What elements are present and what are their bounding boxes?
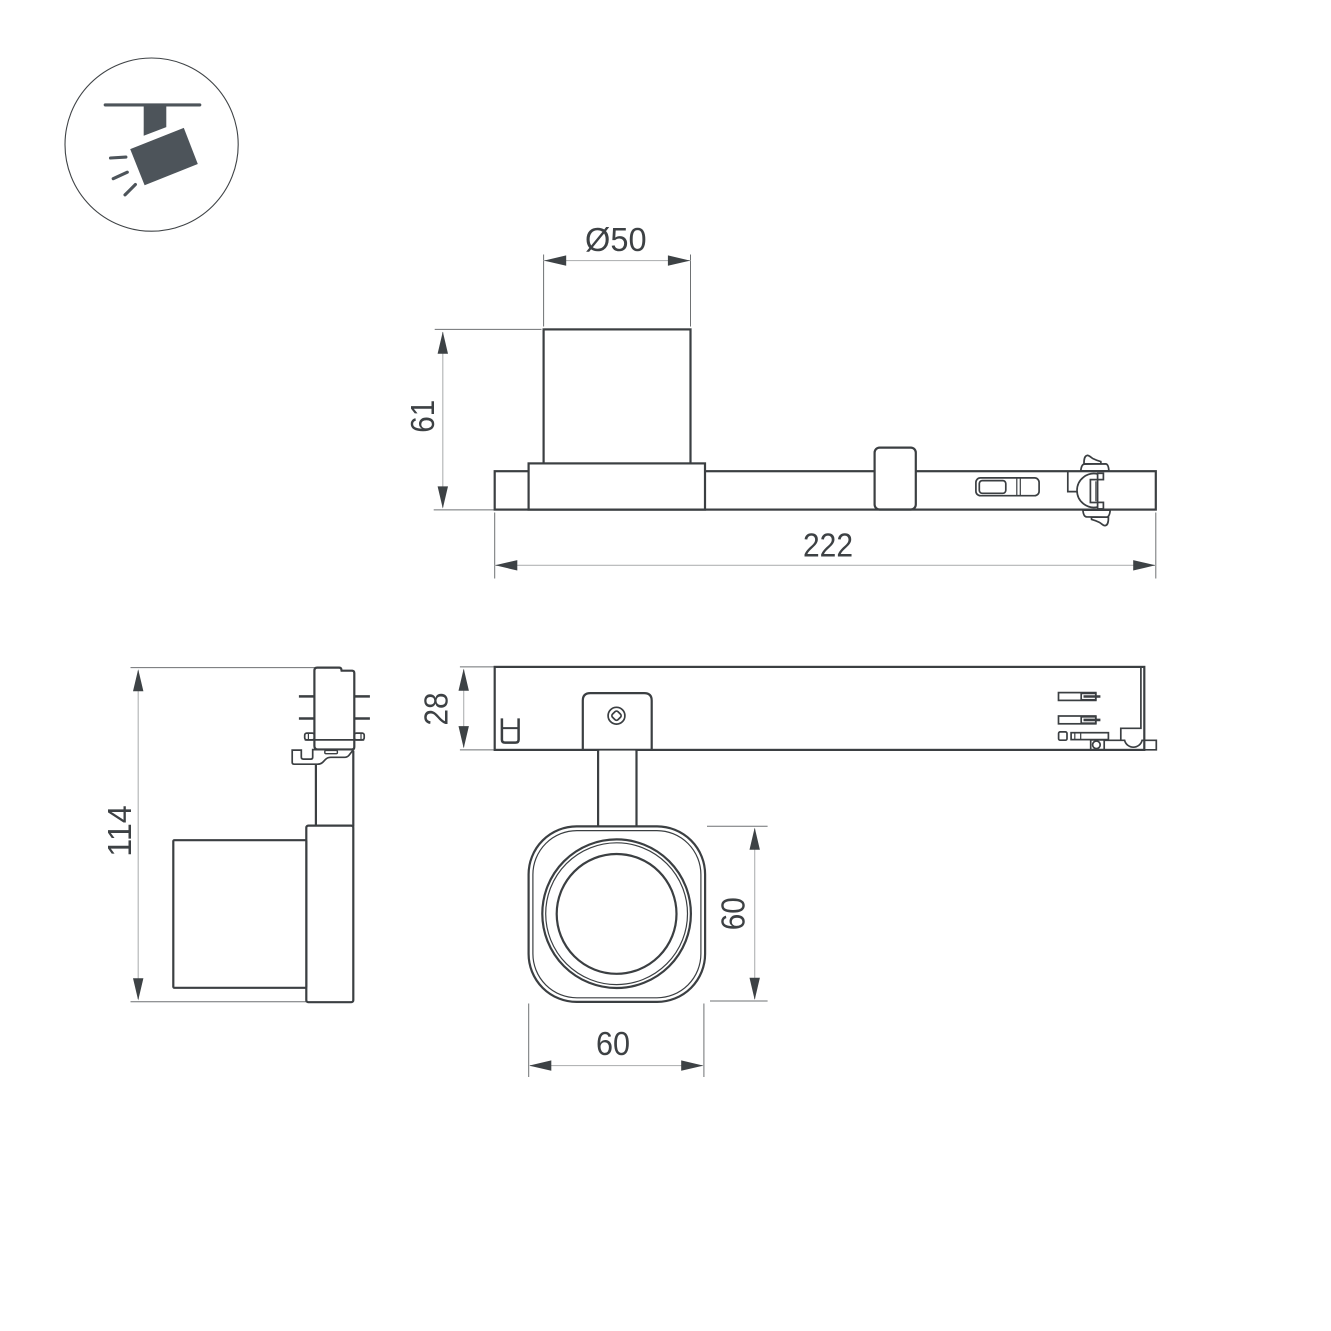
svg-text:28: 28 xyxy=(418,693,455,726)
svg-text:Ø50: Ø50 xyxy=(585,222,647,259)
svg-text:222: 222 xyxy=(803,528,853,565)
svg-text:60: 60 xyxy=(596,1026,630,1063)
svg-text:114: 114 xyxy=(102,805,139,857)
svg-text:60: 60 xyxy=(716,897,753,930)
svg-text:61: 61 xyxy=(405,400,442,433)
